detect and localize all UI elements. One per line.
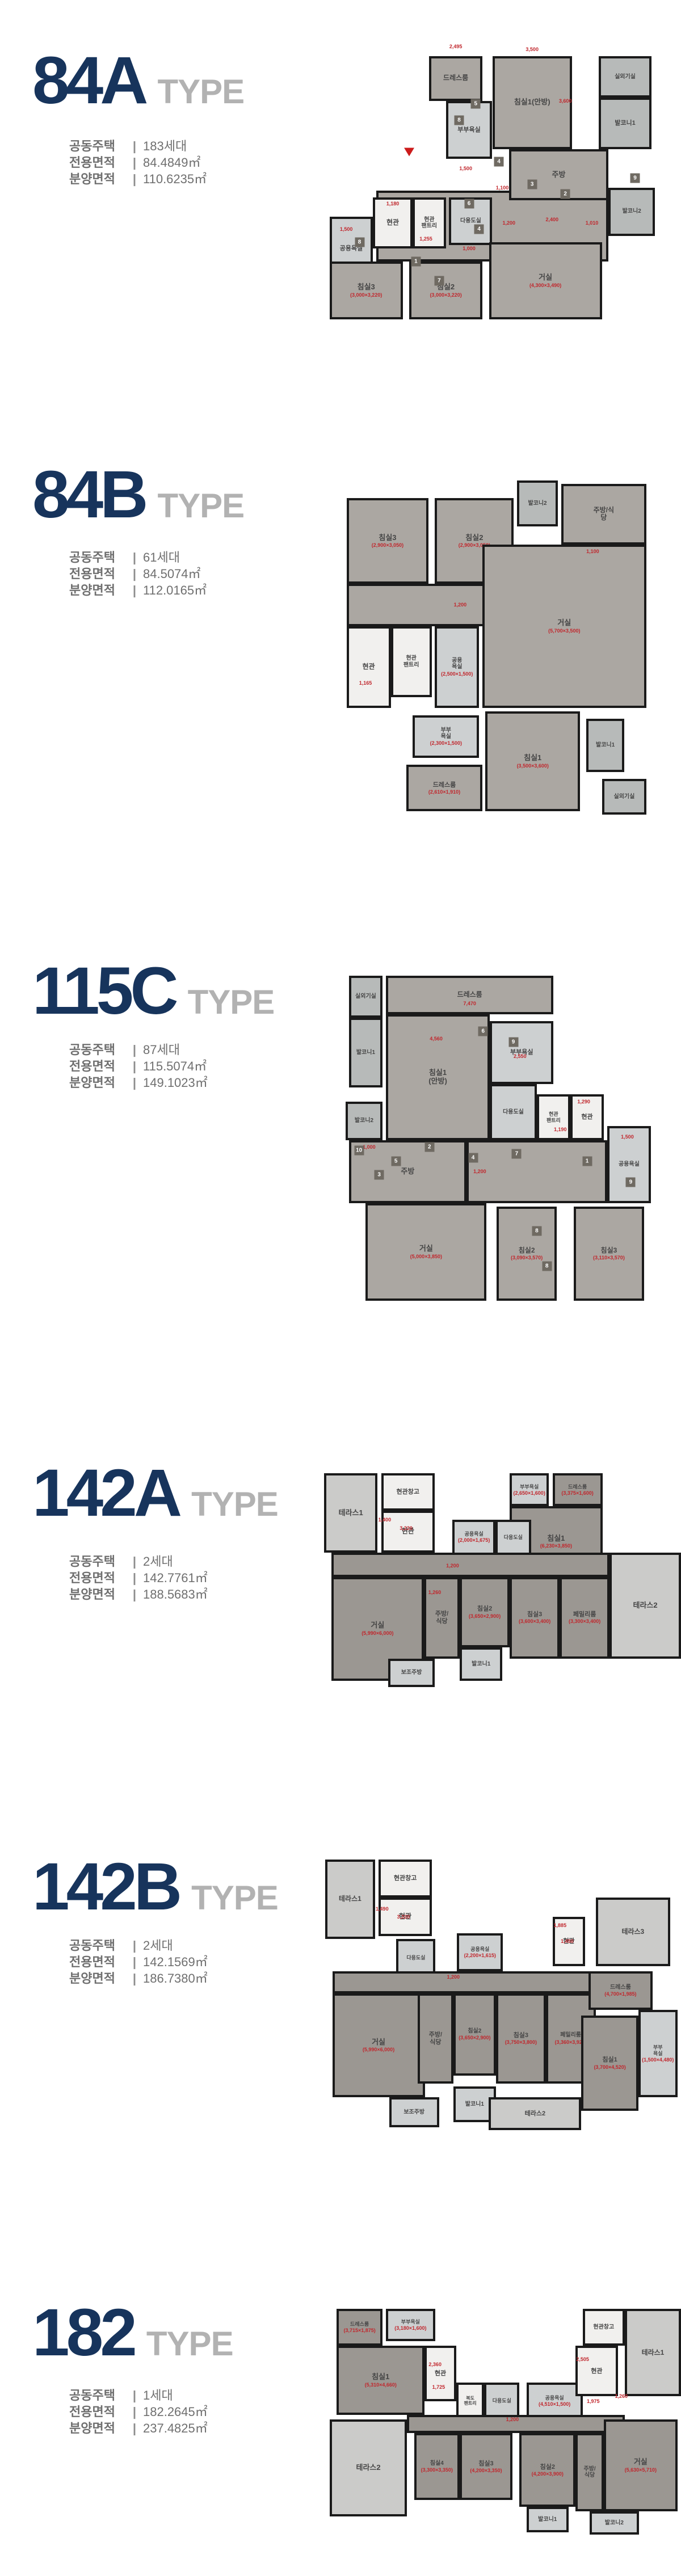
room-label: 현관 (386, 219, 399, 226)
dimension-label: 1,190 (554, 1127, 567, 1132)
dimension-label: 1,200 (506, 2417, 519, 2422)
room-dimension: (2,500×1,500) (441, 672, 473, 677)
spec-row: 분양면적|110.6235㎡ (69, 171, 207, 187)
spec-separator: | (126, 2404, 143, 2420)
room-label: 침실3 (478, 2460, 493, 2467)
spec-label: 전용면적 (69, 1570, 126, 1586)
spec-row: 공동주택|87세대 (69, 1042, 208, 1058)
plan-room: 발코니1 (460, 1647, 502, 1680)
room-label: 부부욕실 (401, 2319, 420, 2325)
unit-title: 142A (32, 1462, 179, 1524)
number-badge: 9 (508, 1037, 518, 1047)
room-label: 주방/식 당 (594, 507, 614, 522)
room-label: 공용욕실 (619, 1161, 640, 1167)
room-dimension: (5,310×4,660) (365, 2383, 397, 2388)
plan-room: 침실4(3,300×3,350) (414, 2433, 460, 2500)
room-label: 보조주방 (403, 2109, 424, 2115)
room-dimension: (4,200×3,900) (532, 2472, 564, 2477)
dimension-label: 1,000 (463, 246, 476, 251)
plan-room: 드레스룸(3,375×1,600) (553, 1473, 603, 1506)
room-label: 현관 팬트리 (403, 655, 419, 668)
room-dimension: (2,900×3,050) (372, 543, 403, 548)
spec-separator: | (126, 1553, 143, 1570)
type-label: TYPE (157, 486, 244, 525)
number-badge: 8 (355, 237, 364, 247)
plan-room: 부부욕실 (490, 1021, 553, 1084)
plan-room: 발코니1 (527, 2507, 569, 2532)
plan-room: 실외기실 (349, 976, 382, 1018)
spec-separator: | (126, 582, 143, 598)
plan-room: 침실2(3,090×3,570) (497, 1207, 557, 1301)
plan-room: 침실2(4,200×3,900) (519, 2433, 575, 2507)
spec-label: 공동주택 (69, 1553, 126, 1570)
floor-plan: 테라스1현관창고현관다용도실공용욕실(2,200×1,615)현관테라스3거실(… (325, 1857, 681, 2130)
room-label: 거실 (634, 2458, 648, 2467)
spec-row: 공동주택|2세대 (69, 1553, 208, 1570)
room-label: 침실1 (524, 754, 541, 762)
plan-room: 침실1(3,700×4,520) (581, 2016, 638, 2111)
spec-label: 공동주택 (69, 1937, 126, 1954)
room-label: 주방/ 식당 (429, 2031, 442, 2046)
room-label: 현관 (581, 1114, 592, 1120)
spec-separator: | (126, 549, 143, 566)
room-dimension: (3,375×1,600) (561, 1491, 593, 1496)
spec-label: 분양면적 (69, 171, 126, 187)
plan-room: 드레스룸(4,700×1,985) (588, 1971, 653, 2009)
room-label: 발코니1 (472, 1661, 490, 1667)
plan-room: 드레스룸(3,715×1,875) (337, 2309, 382, 2346)
room-dimension: (3,300×3,350) (421, 2468, 453, 2473)
unit-title-row: 142A TYPE (32, 1462, 278, 1524)
room-label: 테라스2 (633, 1601, 658, 1610)
spec-separator: | (126, 2387, 143, 2404)
room-label: 드레스룸 (433, 782, 456, 789)
plan-room: 테라스2 (609, 1553, 681, 1659)
plan-room: 실외기실 (599, 56, 652, 98)
spec-value: 2세대 (143, 1937, 173, 1954)
number-badge: 4 (468, 1153, 478, 1162)
room-dimension: (3,180×1,600) (394, 2326, 426, 2331)
room-label: 거실 (419, 1245, 433, 1253)
spec-value: 142.7761㎡ (143, 1570, 208, 1586)
room-dimension: (3,000×3,220) (430, 293, 461, 298)
dimension-label: 2,550 (514, 1053, 527, 1059)
room-label: 현관 팬트리 (547, 1111, 561, 1123)
number-badge: 8 (542, 1261, 552, 1271)
spec-row: 공동주택|1세대 (69, 2387, 208, 2404)
dimension-label: 1,165 (359, 680, 372, 686)
number-badge: 10 (354, 1146, 364, 1156)
spec-label: 분양면적 (69, 1970, 126, 1987)
room-label: 보조주방 (401, 1669, 422, 1676)
room-label: 현관 (435, 2370, 446, 2377)
number-badge: 3 (527, 179, 537, 189)
spec-row: 전용면적|84.4849㎡ (69, 154, 207, 171)
room-dimension: (3,500×3,600) (517, 764, 549, 769)
plan-room: 침실2(3,000×3,220) (409, 262, 482, 319)
unit-title: 84A (32, 50, 145, 112)
unit-title-row: 84A TYPE (32, 50, 244, 112)
spec-separator: | (126, 1970, 143, 1987)
spec-value: 149.1023㎡ (143, 1074, 208, 1091)
room-label: 페밀리룸 (573, 1611, 596, 1618)
spec-label: 분양면적 (69, 1586, 126, 1603)
spec-value: 188.5683㎡ (143, 1586, 208, 1603)
spec-value: 1세대 (143, 2387, 173, 2404)
spec-separator: | (126, 1937, 143, 1954)
plan-room: 침실3(2,900×3,050) (347, 498, 429, 583)
room-dimension: (2,000×1,675) (458, 1538, 490, 1543)
room-label: 발코니1 (538, 2516, 557, 2523)
room-dimension: (5,990×6,000) (361, 1631, 393, 1636)
room-label: 현관창고 (593, 2324, 614, 2330)
plan-room: 거실(5,700×3,500) (482, 545, 646, 708)
unit-title: 142B (32, 1856, 179, 1918)
room-dimension: (4,700×1,985) (604, 1992, 636, 1997)
room-label: 다용도실 (460, 218, 481, 224)
room-label: 다용도실 (503, 1109, 524, 1115)
room-label: 침실1(안방) (514, 98, 550, 107)
room-label: 다용도실 (504, 1534, 523, 1540)
spec-row: 전용면적|142.7761㎡ (69, 1570, 208, 1586)
spec-row: 공동주택|61세대 (69, 549, 207, 566)
dimension-label: 2,505 (576, 2356, 589, 2362)
unit-specs: 공동주택|61세대전용면적|84.5074㎡분양면적|112.0165㎡ (69, 549, 207, 598)
spec-separator: | (126, 2420, 143, 2436)
dimension-label: 1,000 (363, 1144, 376, 1150)
room-dimension: (6,230×3,850) (540, 1544, 572, 1549)
room-label: 주방/ 식당 (583, 2466, 595, 2478)
room-label: 거실 (371, 1621, 384, 1630)
unit-specs: 공동주택|183세대전용면적|84.4849㎡분양면적|110.6235㎡ (69, 138, 207, 187)
spec-label: 전용면적 (69, 1058, 126, 1074)
plan-room: 침실3(3,600×3,400) (510, 1577, 560, 1659)
plan-room: 발코니1 (586, 719, 624, 772)
spec-separator: | (126, 138, 143, 154)
room-label: 발코니1 (465, 2101, 484, 2107)
spec-value: 182.2645㎡ (143, 2404, 208, 2420)
room-label: 침실2 (468, 2028, 481, 2034)
spec-separator: | (126, 171, 143, 187)
room-label: 다용도실 (493, 2398, 511, 2404)
spec-separator: | (126, 1058, 143, 1074)
plan-room: 주방/ 식당 (418, 1993, 453, 2084)
spec-label: 공동주택 (69, 549, 126, 566)
room-label: 거실 (557, 619, 571, 627)
type-label: TYPE (191, 1878, 278, 1917)
plan-room: 거실(4,300×3,490) (489, 242, 602, 319)
dimension-label: 2,400 (546, 217, 559, 222)
room-label: 침실1 (547, 1534, 565, 1543)
room-label: 공용욕실 (470, 1946, 489, 1952)
plan-room: 주방/식 당 (561, 484, 646, 545)
spec-separator: | (126, 1042, 143, 1058)
plan-room: 공용욕실(2,000×1,675) (452, 1520, 495, 1555)
room-label: 공용욕실 (545, 2395, 564, 2401)
plan-room: 현관 (424, 2346, 456, 2401)
dimension-label: 1,500 (621, 1134, 634, 1140)
room-label: 드레스룸 (568, 1484, 587, 1490)
unit-title: 84B (32, 464, 145, 526)
dimension-label: 2,360 (428, 2362, 442, 2367)
dimension-label: 3,500 (526, 47, 539, 52)
spec-row: 분양면적|237.4825㎡ (69, 2420, 208, 2436)
room-label: 침실1 (안방) (428, 1069, 447, 1085)
plan-room: 현관창고 (381, 1473, 435, 1511)
plan-room: 보조주방 (388, 1659, 435, 1688)
spec-label: 분양면적 (69, 2420, 126, 2436)
spec-row: 전용면적|182.2645㎡ (69, 2404, 208, 2420)
room-label: 침실2 (519, 1247, 535, 1254)
dimension-label: 4,560 (430, 1036, 443, 1042)
spec-value: 112.0165㎡ (143, 582, 207, 598)
number-badge: 9 (630, 173, 640, 183)
unit-specs: 공동주택|1세대전용면적|182.2645㎡분양면적|237.4825㎡ (69, 2387, 208, 2436)
plan-room: 부부 욕실(1,500×4,480) (638, 2010, 678, 2097)
spec-label: 공동주택 (69, 138, 126, 154)
spec-value: 84.5074㎡ (143, 566, 201, 582)
room-label: 부부욕실 (457, 127, 480, 133)
room-dimension: (5,700×3,500) (548, 629, 580, 634)
dimension-label: 1,200 (473, 1169, 486, 1174)
spec-value: 110.6235㎡ (143, 171, 207, 187)
plan-room: 드레스룸 (386, 976, 554, 1014)
floor-plan: 침실3(2,900×3,050)침실2(2,900×3,050)발코니2주방/식… (337, 470, 653, 825)
room-dimension: (2,610×1,910) (428, 790, 460, 795)
room-label: 드레스룸 (443, 74, 468, 82)
plan-room (466, 1140, 607, 1203)
room-dimension: (4,300×3,490) (529, 283, 561, 288)
spec-separator: | (126, 1570, 143, 1586)
room-dimension: (5,000×3,850) (410, 1254, 442, 1259)
dimension-label: 1,180 (386, 201, 400, 206)
room-label: 드레스룸 (350, 2321, 369, 2327)
plan-room: 현관 팬트리 (391, 626, 432, 697)
dimension-label: 3,220 (400, 1525, 413, 1531)
plan-room: 보조주방 (389, 2097, 439, 2127)
number-badge: 5 (391, 1156, 401, 1166)
room-label: 침실3 (601, 1247, 617, 1254)
number-badge: 7 (512, 1149, 522, 1159)
room-label: 현관 (363, 663, 375, 671)
plan-room: 거실(5,630×5,710) (604, 2419, 678, 2511)
number-badge: 8 (455, 115, 464, 125)
dimension-label: 1,725 (432, 2384, 445, 2390)
room-dimension: (3,700×4,520) (594, 2065, 625, 2070)
room-dimension: (3,715×1,875) (343, 2328, 375, 2333)
number-badge: 9 (626, 1177, 636, 1187)
plan-room: 테라스1 (324, 1473, 377, 1553)
dimension-label: 1,885 (554, 1922, 567, 1928)
room-dimension: (2,650×1,600) (514, 1491, 545, 1496)
plan-room: 복도 팬트리 (456, 2383, 485, 2419)
plan-room: 거실(5,000×3,850) (365, 1203, 486, 1301)
entrance-marker (404, 148, 414, 157)
room-label: 현관 팬트리 (422, 217, 438, 229)
room-label: 현관창고 (397, 1489, 419, 1495)
dimension-label: 1,100 (586, 549, 599, 554)
floor-plan: 테라스1현관창고현관부부욕실(2,650×1,600)드레스룸(3,375×1,… (324, 1471, 681, 1692)
room-label: 침실3 (358, 283, 375, 292)
dimension-label: 1,010 (586, 220, 599, 226)
room-dimension: (4,510×1,500) (539, 2402, 570, 2407)
dimension-label: 1,290 (577, 1099, 590, 1104)
unit-title-row: 182 TYPE (32, 2302, 233, 2364)
plan-room: 테라스3 (596, 1898, 671, 1966)
spec-label: 공동주택 (69, 1042, 126, 1058)
dimension-label: 1,260 (615, 2393, 628, 2399)
plan-room: 다용도실 (490, 1084, 537, 1140)
room-label: 실외기실 (614, 794, 635, 800)
spec-label: 분양면적 (69, 1074, 126, 1091)
spec-separator: | (126, 1954, 143, 1970)
room-dimension: (3,090×3,570) (511, 1255, 543, 1260)
plan-room: 발코니2 (590, 2511, 639, 2535)
plan-room: 주방/ 식당 (575, 2433, 604, 2511)
room-dimension: (4,200×3,350) (470, 2468, 502, 2473)
room-label: 거실 (539, 273, 552, 282)
number-badge: 7 (434, 276, 444, 285)
room-label: 침실2 (465, 534, 483, 542)
room-label: 드레스룸 (610, 1984, 631, 1991)
unit-title-row: 115C TYPE (32, 960, 274, 1022)
plan-room: 거실(5,990×6,000) (333, 1993, 425, 2097)
room-label: 침실1 (372, 2373, 389, 2381)
spec-value: 2세대 (143, 1553, 173, 1570)
room-label: 테라스1 (339, 1509, 363, 1517)
room-label: 테라스2 (525, 2110, 545, 2117)
room-label: 발코니1 (615, 120, 635, 127)
room-label: 실외기실 (355, 993, 376, 1000)
dimension-label: 3,220 (397, 1914, 410, 1920)
plan-room: 공용 욕실(2,500×1,500) (435, 626, 479, 708)
spec-separator: | (126, 154, 143, 171)
plan-room: 침실3(3,000×3,220) (330, 262, 403, 319)
spec-label: 분양면적 (69, 582, 126, 598)
dimension-label: 1,450 (561, 1938, 574, 1944)
plan-room: 발코니2 (346, 1102, 382, 1140)
unit-title-row: 84B TYPE (32, 464, 244, 526)
spec-value: 84.4849㎡ (143, 154, 201, 171)
room-dimension: (3,650×2,900) (459, 2035, 490, 2040)
plan-room (331, 1553, 610, 1577)
room-dimension: (5,630×5,710) (625, 2468, 657, 2473)
number-badge: 8 (532, 1226, 541, 1236)
plan-room: 침실1(5,310×4,660) (337, 2346, 424, 2415)
type-label: TYPE (146, 2324, 233, 2363)
dimension-label: 2,495 (449, 44, 463, 49)
plan-room: 부부욕실(2,650×1,600) (510, 1473, 549, 1506)
unit-title-row: 142B TYPE (32, 1856, 278, 1918)
plan-room: 침실2(3,650×2,900) (460, 1577, 510, 1647)
room-label: 현관창고 (394, 1875, 417, 1882)
room-label: 침실2 (540, 2464, 555, 2470)
dimension-label: 1,255 (419, 236, 432, 242)
spec-label: 공동주택 (69, 2387, 126, 2404)
spec-label: 전용면적 (69, 154, 126, 171)
room-label: 발코니1 (596, 742, 615, 748)
dimension-label: 1,400 (379, 1517, 392, 1523)
spec-value: 183세대 (143, 138, 187, 154)
room-label: 부부 욕실 (441, 727, 451, 740)
room-dimension: (1,500×4,480) (642, 2058, 674, 2063)
room-label: 테라스1 (339, 1895, 361, 1903)
room-label: 침실2 (477, 1605, 492, 1612)
plan-room: 현관 팬트리 (537, 1094, 570, 1140)
plan-room: 드레스룸 (429, 56, 482, 101)
number-badge: 6 (464, 199, 474, 208)
dimension-label: 1,975 (587, 2398, 600, 2404)
spec-value: 186.7380㎡ (143, 1970, 208, 1987)
room-label: 현관 (591, 2368, 602, 2375)
dimension-label: 1,490 (376, 1906, 389, 1912)
plan-room: 테라스1 (325, 1860, 375, 1939)
plan-room: 다용도실 (495, 1520, 531, 1555)
floor-plan: 실외기실드레스룸발코니1침실1 (안방)부부욕실발코니2다용도실현관 팬트리현관… (346, 962, 681, 1312)
spec-value: 61세대 (143, 549, 180, 566)
number-badge: 3 (375, 1170, 384, 1180)
spec-row: 분양면적|112.0165㎡ (69, 582, 207, 598)
unit-specs: 공동주택|2세대전용면적|142.7761㎡분양면적|188.5683㎡ (69, 1553, 208, 1603)
room-label: 침실3 (527, 1611, 542, 1618)
room-label: 공용욕실 (465, 1531, 484, 1537)
room-label: 주방/ 식당 (435, 1610, 448, 1625)
number-badge: 1 (582, 1156, 592, 1166)
spec-value: 115.5074㎡ (143, 1058, 207, 1074)
room-dimension: (3,750×3,800) (505, 2040, 537, 2045)
room-label: 거실 (372, 2038, 385, 2047)
dimension-label: 1,100 (496, 185, 509, 191)
plan-room: 주방 (509, 149, 609, 201)
spec-row: 공동주택|2세대 (69, 1937, 208, 1954)
plan-room: 다용도실 (484, 2383, 519, 2419)
number-badge: 2 (424, 1142, 434, 1152)
spec-value: 87세대 (143, 1042, 180, 1058)
number-badge: 2 (561, 189, 570, 199)
spec-value: 142.1569㎡ (143, 1954, 208, 1970)
plan-room: 침실3(4,200×3,350) (460, 2433, 512, 2500)
room-label: 주방 (401, 1167, 414, 1176)
room-label: 침실3 (514, 2032, 528, 2039)
spec-row: 전용면적|84.5074㎡ (69, 566, 207, 582)
number-badge: 5 (471, 99, 481, 109)
dimension-label: 1,200 (502, 220, 515, 226)
plan-room: 발코니2 (608, 188, 655, 236)
spec-row: 전용면적|142.1569㎡ (69, 1954, 208, 1970)
plan-room: 침실3(3,750×3,800) (496, 1993, 546, 2084)
dimension-label: 3,600 (559, 98, 572, 104)
plan-room: 현관 (575, 2346, 617, 2396)
spec-separator: | (126, 1586, 143, 1603)
plan-room: 현관 (347, 626, 391, 708)
room-dimension: (3,000×3,220) (350, 293, 382, 298)
room-label: 페밀리룸 (560, 2032, 581, 2038)
room-label: 침실4 (430, 2460, 444, 2467)
room-label: 다용도실 (406, 1955, 425, 1961)
room-label: 부부 욕실 (653, 2044, 663, 2056)
plan-room: 테라스2 (489, 2097, 581, 2130)
room-label: 테라스3 (621, 1928, 644, 1936)
spec-row: 분양면적|188.5683㎡ (69, 1586, 208, 1603)
spec-row: 공동주택|183세대 (69, 138, 207, 154)
plan-room: 현관창고 (379, 1860, 432, 1898)
room-dimension: (2,300×1,500) (430, 741, 462, 746)
room-label: 발코니2 (355, 1118, 373, 1124)
room-label: 테라스1 (642, 2349, 665, 2356)
plan-room: 공용욕실(4,510×1,500) (527, 2383, 583, 2419)
floor-plan: 드레스룸(3,715×1,875)부부욕실(3,180×1,600)침실1(5,… (330, 2304, 681, 2535)
dimension-label: 1,260 (428, 1590, 442, 1595)
